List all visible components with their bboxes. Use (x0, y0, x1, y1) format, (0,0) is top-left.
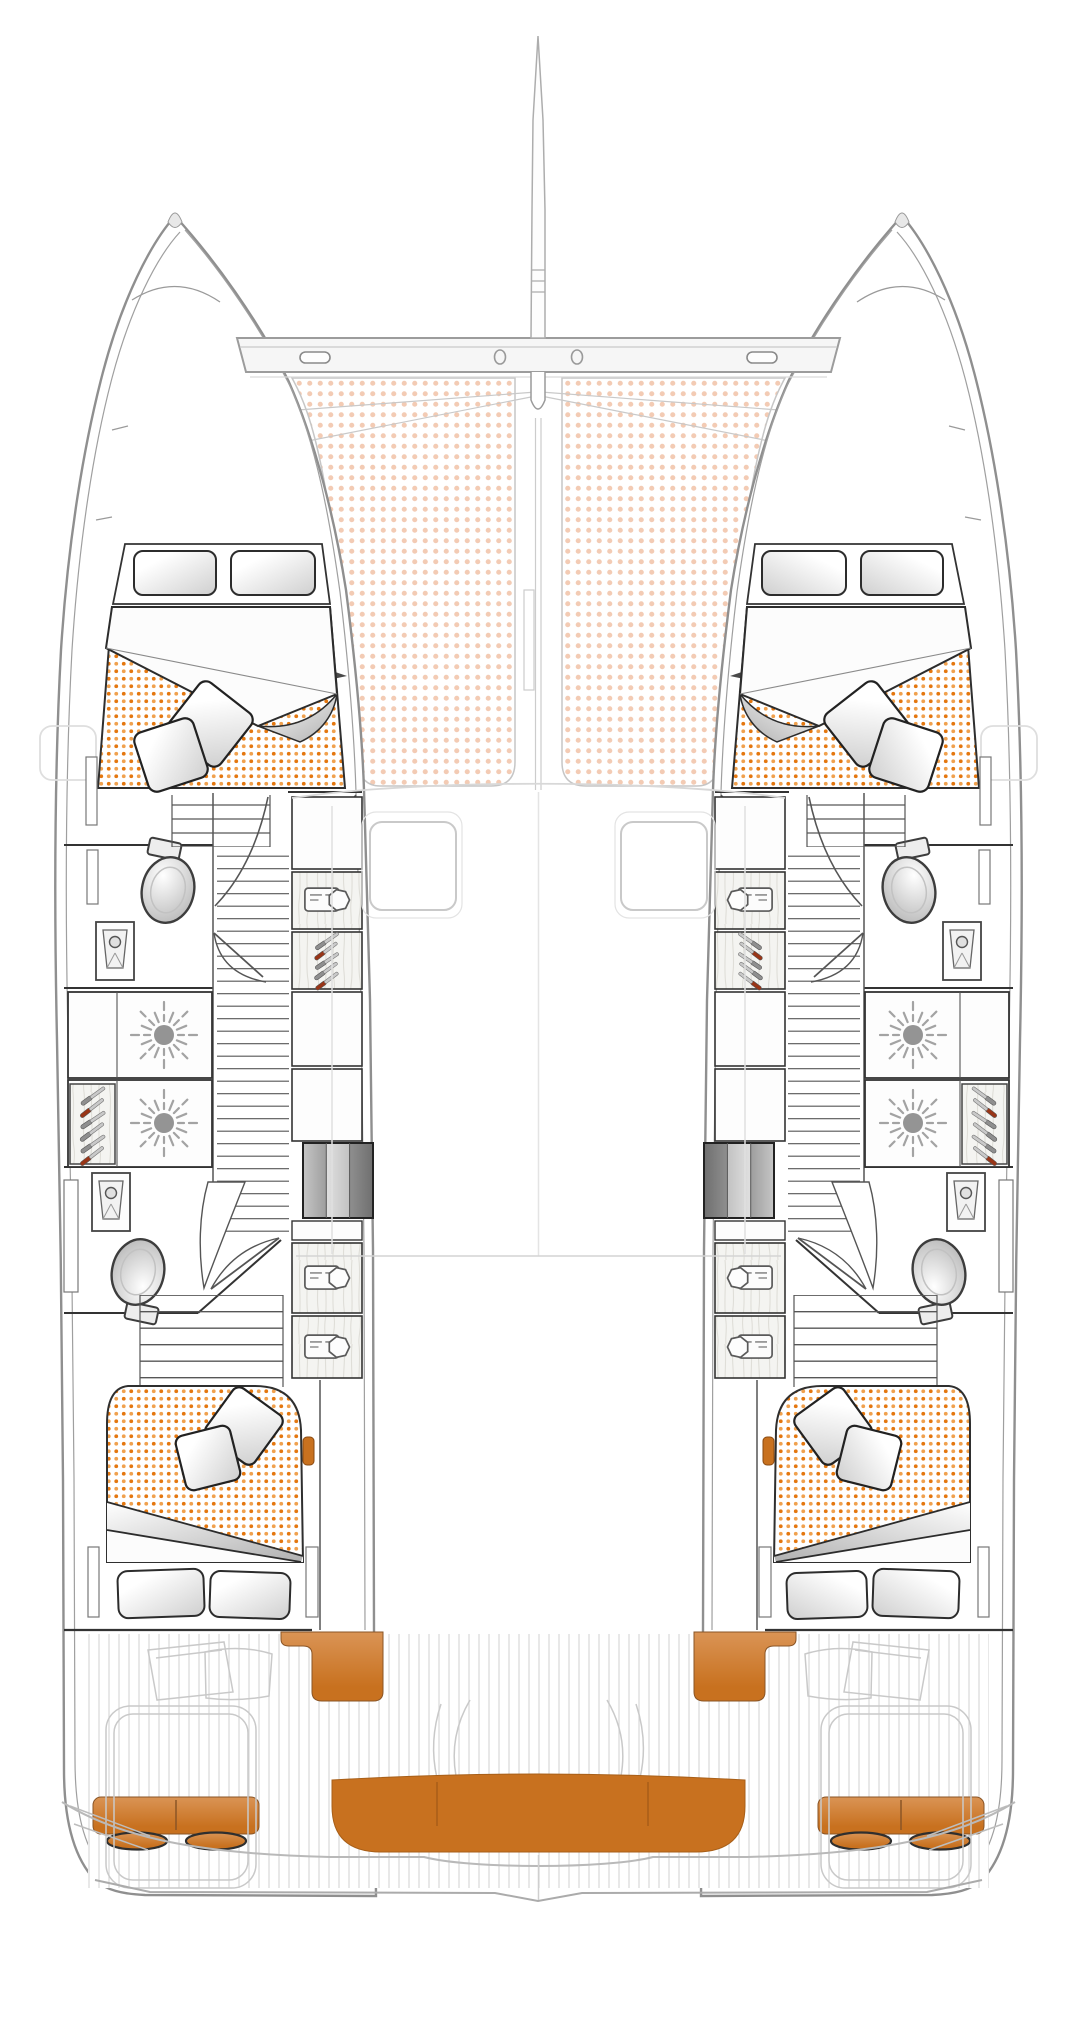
catamaran-floor-plan (0, 0, 1077, 2040)
stern-sunbed-bench (332, 1774, 745, 1852)
floor-plan-svg (0, 0, 1077, 2040)
